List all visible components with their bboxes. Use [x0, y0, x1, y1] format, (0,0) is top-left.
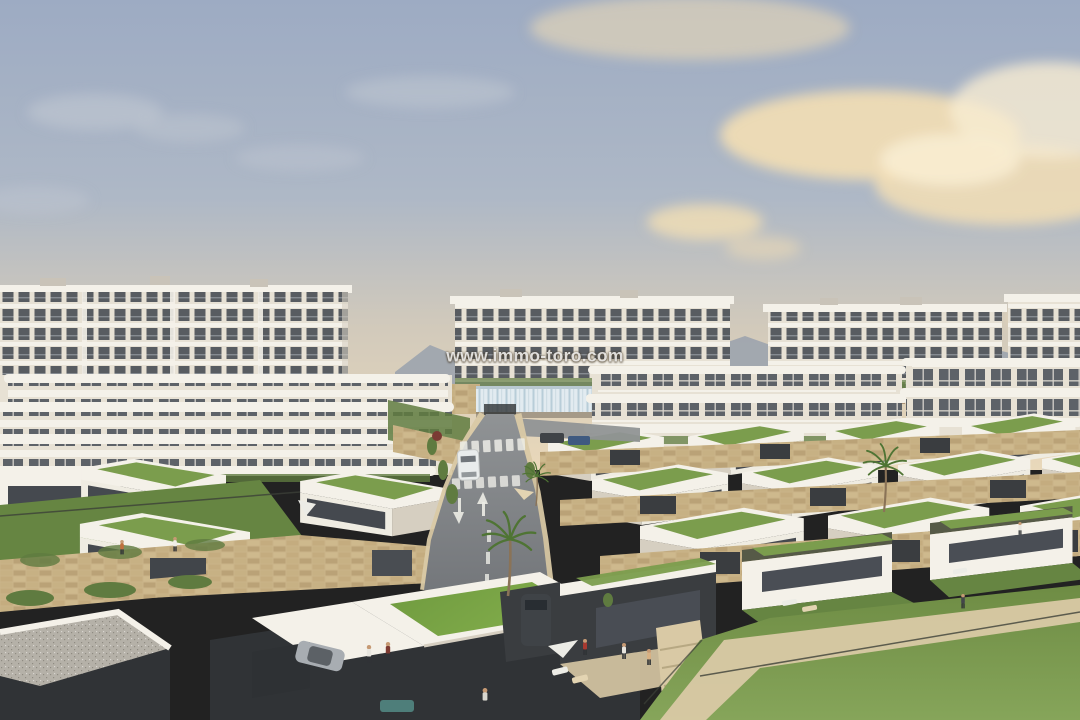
cypress-bush — [446, 484, 458, 504]
car-blue — [568, 436, 590, 445]
rooftop-unit — [250, 279, 268, 287]
garage-door — [920, 438, 950, 453]
cloud — [647, 204, 763, 240]
potted-plant — [603, 593, 613, 607]
red-bush — [432, 431, 442, 441]
ivy — [168, 575, 212, 589]
garage-door — [640, 496, 676, 514]
ivy — [6, 590, 54, 606]
cloud — [725, 236, 801, 260]
car-dark — [540, 433, 564, 443]
rooftop-unit — [620, 290, 638, 298]
cypress-bush — [525, 462, 535, 478]
ivy — [185, 539, 225, 551]
garage-door — [760, 444, 790, 459]
garage-door — [810, 488, 846, 506]
ivy — [98, 545, 142, 559]
garage-door — [610, 450, 640, 465]
cloud — [235, 145, 365, 171]
garage-door — [372, 550, 412, 576]
rooftop-unit — [820, 298, 838, 305]
cloud — [345, 76, 515, 108]
car-white — [457, 449, 480, 480]
watermark-text: www.immo-toro.com — [446, 346, 624, 367]
rooftop-unit — [150, 276, 170, 285]
apartment-terraces-left — [0, 374, 454, 482]
rooftop-unit — [500, 289, 522, 297]
garage-door — [990, 480, 1026, 498]
ivy — [20, 553, 60, 567]
rooftop-unit — [900, 297, 922, 305]
ivy — [84, 582, 136, 598]
architectural-rendering: www.immo-toro.com — [0, 0, 1080, 720]
cloud — [135, 114, 245, 142]
outdoor-sofa — [380, 700, 414, 712]
rooftop-unit — [40, 278, 66, 286]
cypress-bush — [438, 460, 448, 480]
cloud — [880, 134, 1020, 186]
gravel-roof-building — [0, 612, 170, 720]
